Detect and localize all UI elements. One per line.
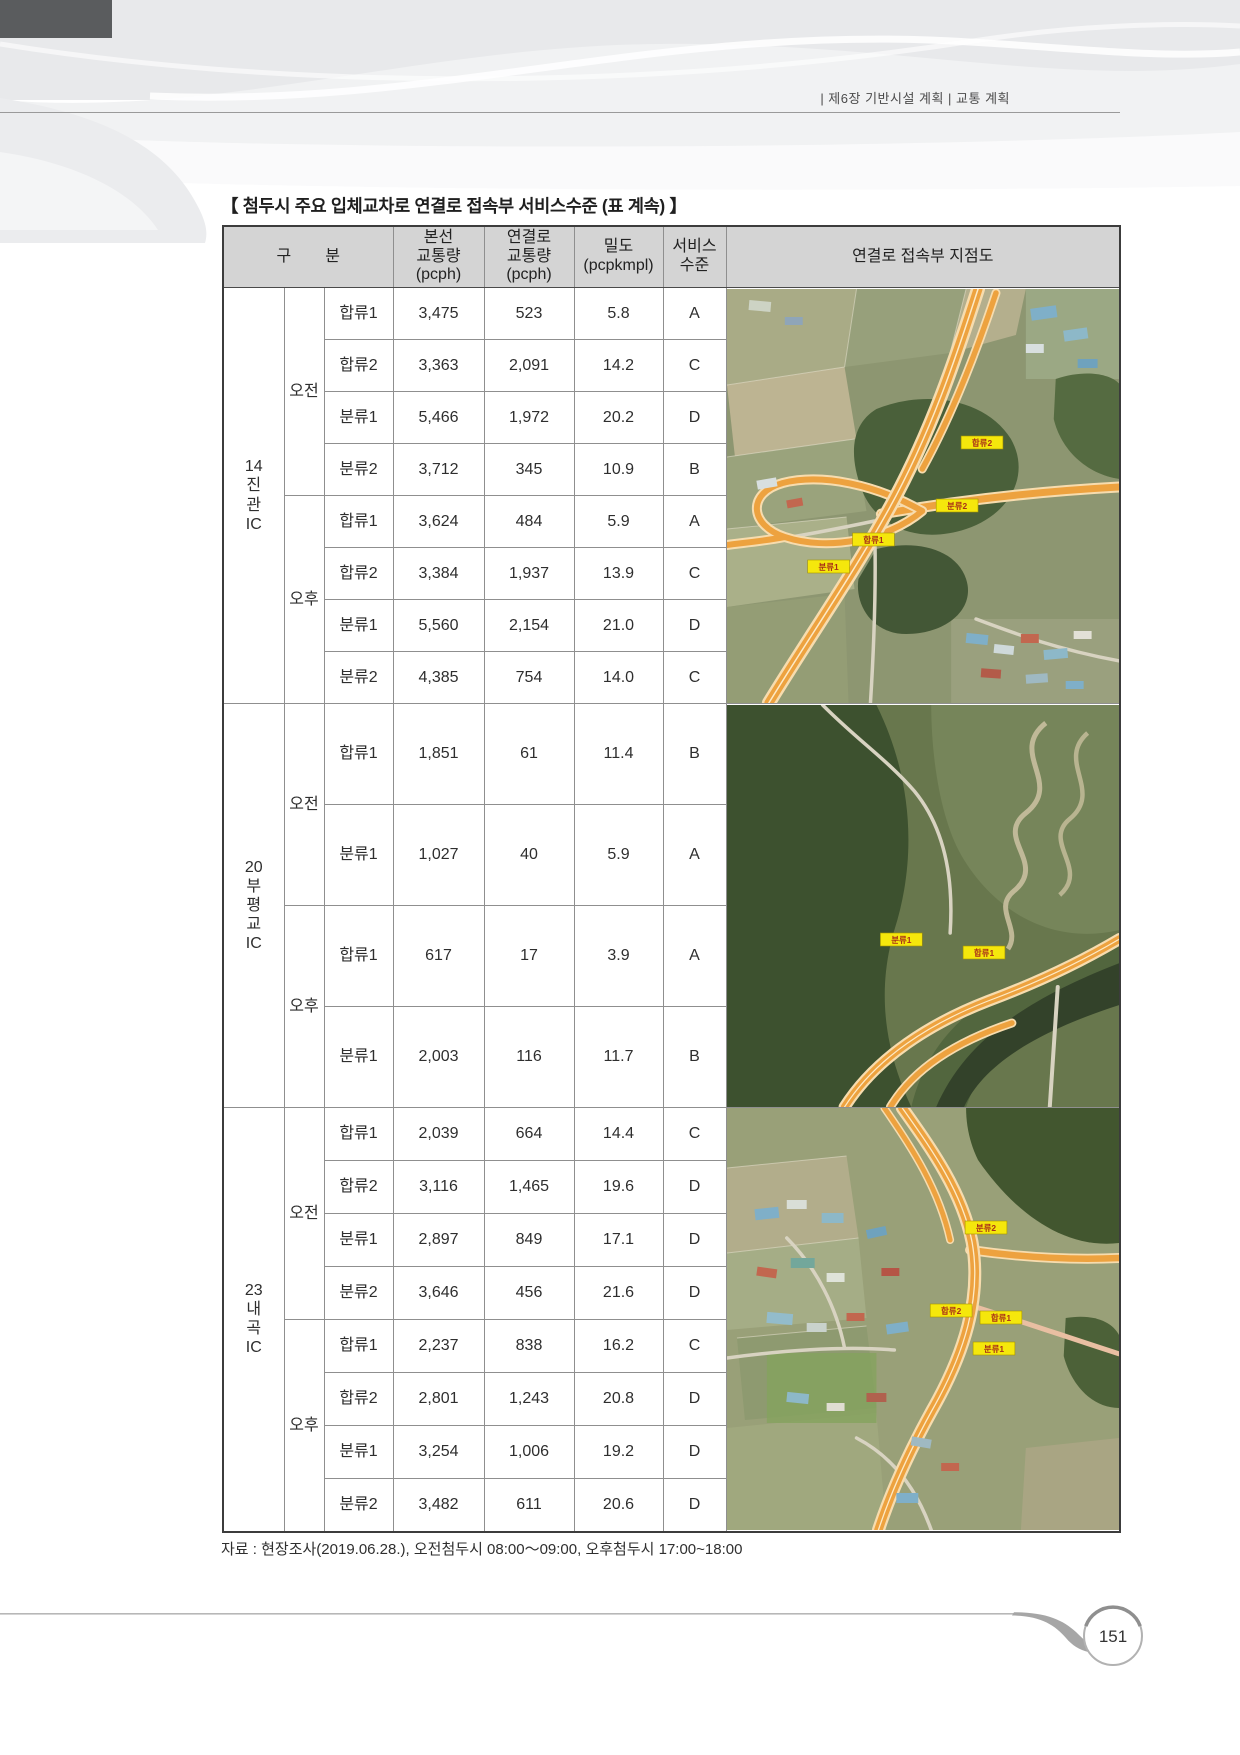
table-title: 【 첨두시 주요 입체교차로 연결로 접속부 서비스수준 (표 계속) 】	[221, 193, 687, 218]
density-cell: 14.4	[574, 1108, 663, 1161]
mainline-volume-cell: 2,003	[393, 1007, 484, 1108]
header-cell-gubun: 구 분	[223, 226, 393, 288]
ramp-cell: 합류1	[324, 704, 393, 805]
ramp-cell: 분류2	[324, 1479, 393, 1532]
ramp-volume-cell: 1,972	[484, 392, 574, 444]
ramp-volume-cell: 456	[484, 1267, 574, 1320]
los-cell: B	[663, 444, 726, 496]
mainline-volume-cell: 3,384	[393, 548, 484, 600]
ramp-volume-cell: 1,465	[484, 1161, 574, 1214]
table-row: 23 내 곡 IC 오전 합류1 2,039 664 14.4 C	[223, 1108, 1120, 1161]
mainline-volume-cell: 1,851	[393, 704, 484, 805]
density-cell: 5.9	[574, 805, 663, 906]
table-row: 14 진 관 IC 오전 합류1 3,475 523 5.8 A	[223, 288, 1120, 340]
satellite-map-naegok-ic: 분류2 합류2 합류1 분류1	[727, 1108, 1120, 1530]
density-cell: 10.9	[574, 444, 663, 496]
map-label: 합류1	[963, 946, 1005, 959]
mainline-volume-cell: 2,039	[393, 1108, 484, 1161]
ic-cell-bupyeonggyo: 20 부 평 교 IC	[223, 704, 284, 1108]
svg-text:분류2: 분류2	[946, 500, 967, 510]
ramp-cell: 분류2	[324, 652, 393, 704]
mainline-volume-cell: 1,027	[393, 805, 484, 906]
header-chapter-text: | 제6장 기반시설 계획 | 교통 계획	[820, 88, 1010, 107]
los-cell: B	[663, 704, 726, 805]
header-cell-density: 밀도 (pcpkmpl)	[574, 226, 663, 288]
ramp-volume-cell: 611	[484, 1479, 574, 1532]
period-cell: 오후	[284, 1320, 324, 1532]
svg-text:분류1: 분류1	[891, 934, 912, 944]
los-cell: C	[663, 1108, 726, 1161]
los-cell: A	[663, 288, 726, 340]
map-cell-jingwan: 합류2 분류2 합류1 분류1	[726, 288, 1120, 704]
density-cell: 16.2	[574, 1320, 663, 1373]
mainline-volume-cell: 3,475	[393, 288, 484, 340]
satellite-map-bupyeonggyo-ic: 분류1 합류1	[727, 705, 1120, 1107]
los-cell: B	[663, 1007, 726, 1108]
density-cell: 20.2	[574, 392, 663, 444]
density-cell: 19.2	[574, 1426, 663, 1479]
ramp-volume-cell: 1,937	[484, 548, 574, 600]
ramp-cell: 합류1	[324, 288, 393, 340]
ramp-volume-cell: 61	[484, 704, 574, 805]
svg-text:분류1: 분류1	[818, 561, 839, 571]
map-label: 분류2	[965, 1221, 1007, 1234]
density-cell: 21.0	[574, 600, 663, 652]
los-cell: D	[663, 1267, 726, 1320]
density-cell: 20.8	[574, 1373, 663, 1426]
ramp-cell: 합류2	[324, 340, 393, 392]
ramp-volume-cell: 849	[484, 1214, 574, 1267]
mainline-volume-cell: 2,897	[393, 1214, 484, 1267]
ic-cell-naegok: 23 내 곡 IC	[223, 1108, 284, 1532]
ramp-cell: 합류1	[324, 1108, 393, 1161]
ramp-volume-cell: 116	[484, 1007, 574, 1108]
header-cell-ramp-volume: 연결로 교통량 (pcph)	[484, 226, 574, 288]
los-cell: C	[663, 652, 726, 704]
ramp-cell: 분류1	[324, 392, 393, 444]
mainline-volume-cell: 5,466	[393, 392, 484, 444]
los-cell: D	[663, 1373, 726, 1426]
header-cell-map: 연결로 접속부 지점도	[726, 226, 1120, 288]
map-label: 합류1	[852, 533, 894, 546]
ramp-volume-cell: 754	[484, 652, 574, 704]
footer-decoration: 151	[0, 1580, 1240, 1700]
density-cell: 5.8	[574, 288, 663, 340]
mainline-volume-cell: 3,482	[393, 1479, 484, 1532]
page-number: 151	[1099, 1627, 1127, 1646]
map-cell-naegok: 분류2 합류2 합류1 분류1	[726, 1108, 1120, 1532]
mainline-volume-cell: 3,116	[393, 1161, 484, 1214]
period-cell: 오후	[284, 906, 324, 1108]
svg-text:합류1: 합류1	[863, 534, 884, 544]
period-cell: 오전	[284, 1108, 324, 1320]
los-cell: C	[663, 340, 726, 392]
mainline-volume-cell: 3,624	[393, 496, 484, 548]
ramp-volume-cell: 664	[484, 1108, 574, 1161]
mainline-volume-cell: 3,712	[393, 444, 484, 496]
ramp-cell: 합류2	[324, 548, 393, 600]
ramp-cell: 합류2	[324, 1373, 393, 1426]
mainline-volume-cell: 5,560	[393, 600, 484, 652]
density-cell: 11.7	[574, 1007, 663, 1108]
mainline-volume-cell: 617	[393, 906, 484, 1007]
density-cell: 3.9	[574, 906, 663, 1007]
header-rule	[0, 112, 1120, 113]
mainline-volume-cell: 3,254	[393, 1426, 484, 1479]
ramp-volume-cell: 345	[484, 444, 574, 496]
ramp-cell: 분류1	[324, 1007, 393, 1108]
ramp-cell: 합류1	[324, 1320, 393, 1373]
mainline-volume-cell: 2,801	[393, 1373, 484, 1426]
map-label: 분류1	[807, 560, 849, 573]
ramp-volume-cell: 838	[484, 1320, 574, 1373]
svg-text:합류1: 합류1	[990, 1313, 1011, 1323]
ramp-cell: 합류1	[324, 496, 393, 548]
ramp-volume-cell: 523	[484, 288, 574, 340]
ramp-volume-cell: 2,091	[484, 340, 574, 392]
svg-text:분류2: 분류2	[975, 1223, 996, 1233]
map-label: 합류2	[930, 1304, 972, 1317]
ramp-cell: 합류2	[324, 1161, 393, 1214]
satellite-map-jingwan-ic: 합류2 분류2 합류1 분류1	[727, 289, 1120, 703]
los-cell: D	[663, 1479, 726, 1532]
density-cell: 14.0	[574, 652, 663, 704]
map-label: 분류1	[973, 1342, 1015, 1355]
map-label: 분류1	[880, 933, 922, 946]
los-cell: D	[663, 1426, 726, 1479]
svg-text:합류2: 합류2	[971, 437, 992, 447]
header-gubun-left: 구	[277, 248, 292, 267]
ramp-cell: 분류1	[324, 1426, 393, 1479]
los-cell: D	[663, 1161, 726, 1214]
svg-text:합류1: 합류1	[973, 947, 994, 957]
los-cell: C	[663, 1320, 726, 1373]
ic-cell-jingwan: 14 진 관 IC	[223, 288, 284, 704]
svg-text:분류1: 분류1	[983, 1344, 1004, 1354]
period-cell: 오후	[284, 496, 324, 704]
los-cell: A	[663, 496, 726, 548]
ramp-cell: 분류2	[324, 444, 393, 496]
ramp-volume-cell: 1,243	[484, 1373, 574, 1426]
los-cell: C	[663, 548, 726, 600]
ramp-volume-cell: 2,154	[484, 600, 574, 652]
los-cell: D	[663, 392, 726, 444]
corner-block	[0, 0, 112, 38]
ramp-cell: 분류1	[324, 805, 393, 906]
mainline-volume-cell: 2,237	[393, 1320, 484, 1373]
header-cell-los: 서비스 수준	[663, 226, 726, 288]
density-cell: 14.2	[574, 340, 663, 392]
los-cell: D	[663, 600, 726, 652]
map-label: 합류2	[961, 436, 1003, 449]
period-cell: 오전	[284, 288, 324, 496]
density-cell: 19.6	[574, 1161, 663, 1214]
mainline-volume-cell: 3,363	[393, 340, 484, 392]
ramp-cell: 분류1	[324, 1214, 393, 1267]
ramp-cell: 분류2	[324, 1267, 393, 1320]
density-cell: 21.6	[574, 1267, 663, 1320]
los-table: 구 분 본선 교통량 (pcph) 연결로 교통량 (pcph) 밀도 (pcp…	[222, 225, 1121, 1533]
ramp-volume-cell: 484	[484, 496, 574, 548]
map-label: 합류1	[980, 1311, 1022, 1324]
ramp-cell: 합류1	[324, 906, 393, 1007]
map-label: 분류2	[936, 499, 978, 512]
header-cell-mainline: 본선 교통량 (pcph)	[393, 226, 484, 288]
svg-text:합류2: 합류2	[941, 1306, 962, 1316]
density-cell: 20.6	[574, 1479, 663, 1532]
ramp-cell: 분류1	[324, 600, 393, 652]
mainline-volume-cell: 3,646	[393, 1267, 484, 1320]
density-cell: 5.9	[574, 496, 663, 548]
document-page: | 제6장 기반시설 계획 | 교통 계획 【 첨두시 주요 입체교차로 연결로…	[0, 0, 1240, 1755]
period-cell: 오전	[284, 704, 324, 906]
los-cell: A	[663, 805, 726, 906]
header-gubun-right: 분	[325, 248, 340, 267]
density-cell: 17.1	[574, 1214, 663, 1267]
ramp-volume-cell: 40	[484, 805, 574, 906]
los-cell: A	[663, 906, 726, 1007]
mainline-volume-cell: 4,385	[393, 652, 484, 704]
density-cell: 11.4	[574, 704, 663, 805]
map-cell-bupyeonggyo: 분류1 합류1	[726, 704, 1120, 1108]
density-cell: 13.9	[574, 548, 663, 600]
los-cell: D	[663, 1214, 726, 1267]
ramp-volume-cell: 17	[484, 906, 574, 1007]
table-row: 20 부 평 교 IC 오전 합류1 1,851 61 11.4 B	[223, 704, 1120, 805]
ramp-volume-cell: 1,006	[484, 1426, 574, 1479]
source-footnote: 자료 : 현장조사(2019.06.28.), 오전첨두시 08:00〜09:0…	[221, 1538, 742, 1559]
